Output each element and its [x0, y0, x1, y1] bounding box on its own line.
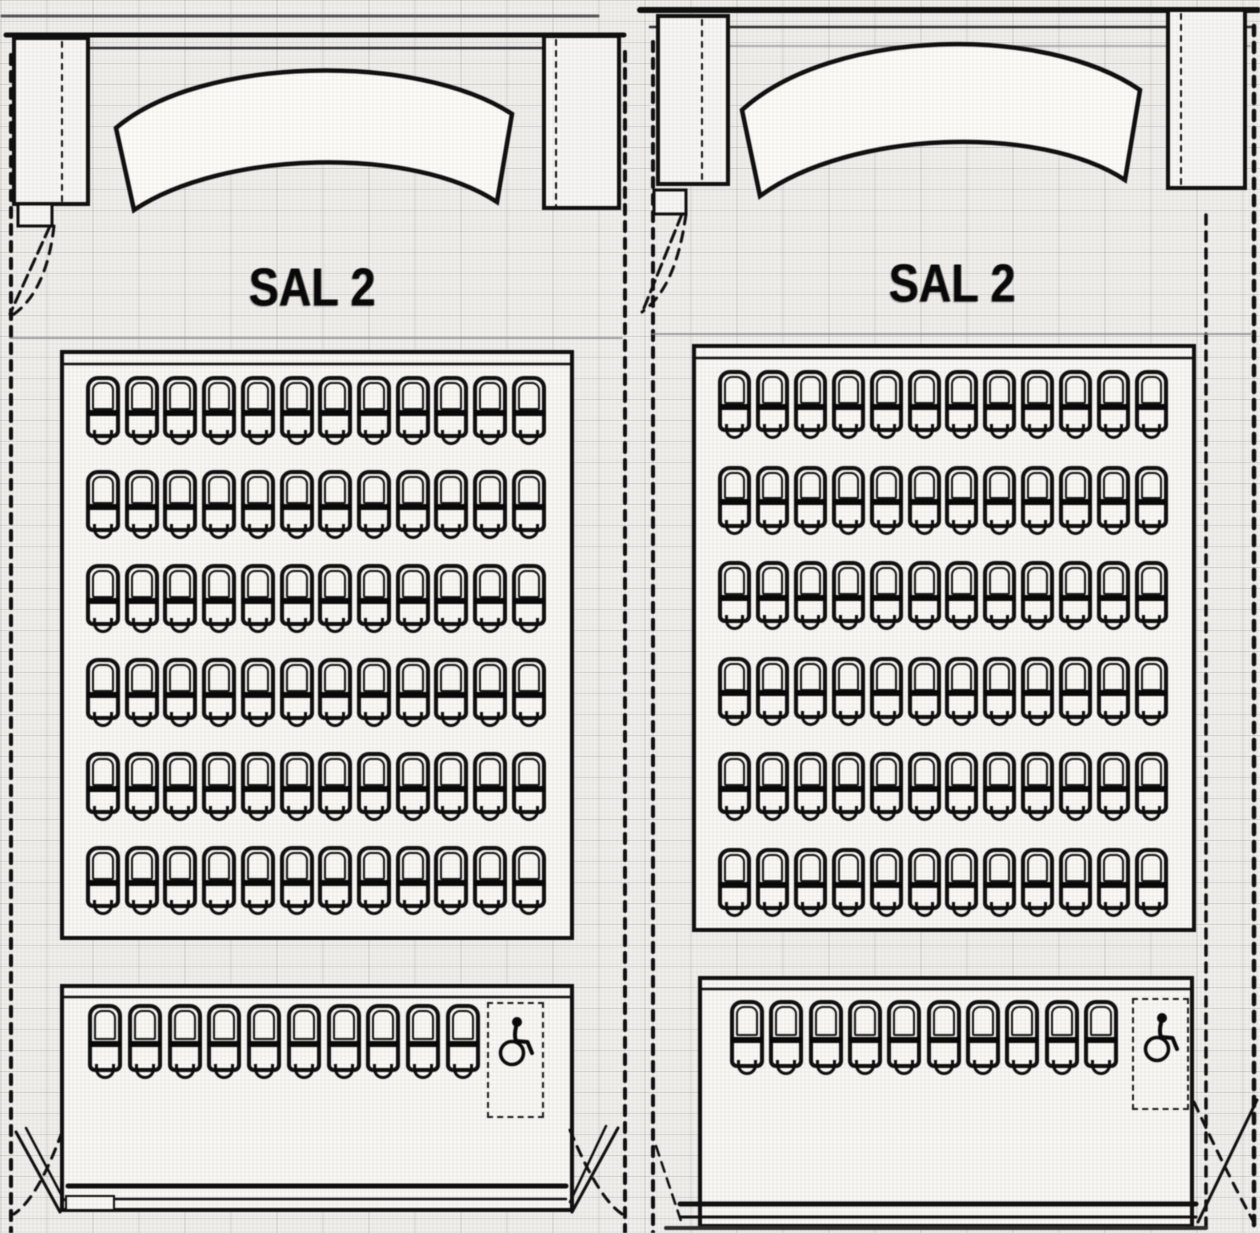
scan-noise-overlay — [0, 0, 1260, 1233]
scanned-seating-plan: SAL 2 — [0, 0, 1260, 1233]
